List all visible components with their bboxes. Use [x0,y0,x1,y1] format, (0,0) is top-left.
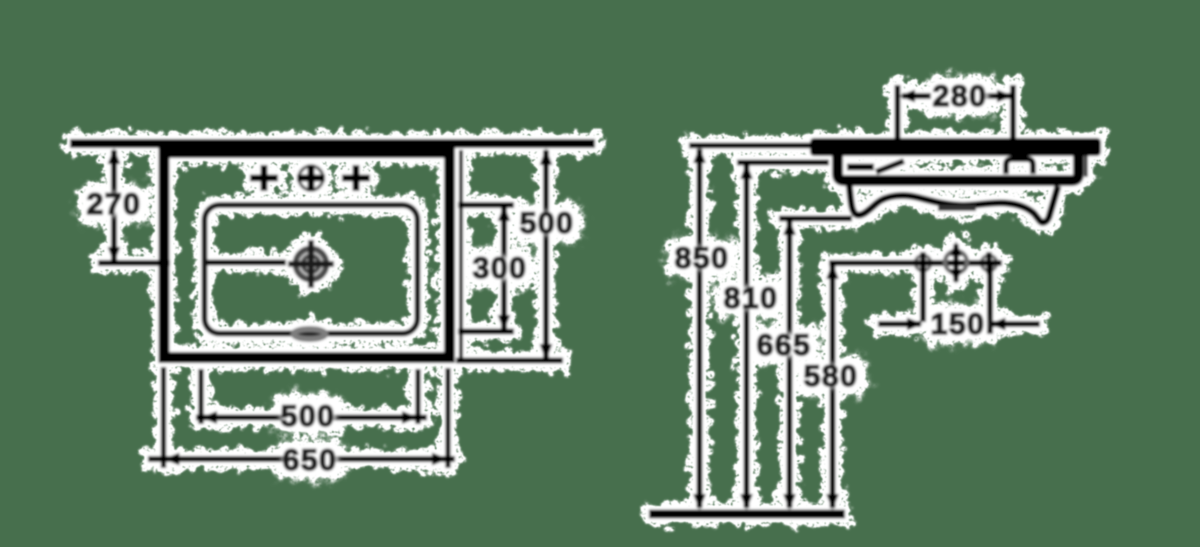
svg-text:300: 300 [473,252,528,285]
svg-text:580: 580 [804,360,859,393]
svg-text:500: 500 [520,207,575,240]
svg-text:270: 270 [87,188,142,221]
svg-text:150: 150 [931,308,986,341]
svg-text:500: 500 [281,400,336,433]
svg-text:850: 850 [675,242,730,275]
svg-text:810: 810 [724,282,779,315]
svg-text:665: 665 [757,329,812,362]
svg-text:280: 280 [933,80,988,113]
svg-text:650: 650 [283,444,338,477]
